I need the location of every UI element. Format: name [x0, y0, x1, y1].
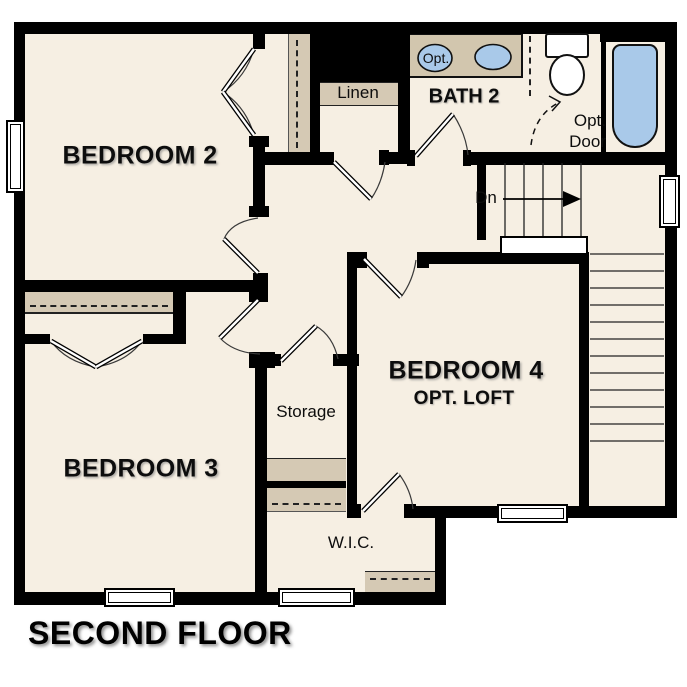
room-label-wic: W.I.C.: [328, 533, 374, 553]
window-pane: [108, 592, 171, 603]
door-swing: [281, 326, 338, 361]
optional-door-label-line2: Door: [540, 131, 606, 152]
door-swing: [220, 300, 260, 354]
room-label-bedroom2: BEDROOM 2: [62, 142, 217, 171]
down-arrow-icon: [503, 191, 581, 207]
floorplan-canvas: BEDROOM 2 BEDROOM 3 BEDROOM 4 OPT. LOFT …: [0, 0, 687, 687]
door-swing: [363, 474, 413, 511]
window: [6, 120, 25, 193]
door-swing: [51, 341, 142, 367]
toilet-icon: [546, 34, 588, 95]
window-pane: [663, 179, 676, 224]
door-swing: [416, 114, 468, 156]
window: [497, 504, 568, 523]
plan-linework-layer: [0, 0, 687, 687]
window: [104, 588, 175, 607]
room-label-bath2: BATH 2: [429, 86, 500, 109]
window-pane: [282, 592, 351, 603]
plan-title: SECOND FLOOR: [28, 615, 292, 652]
stairs-down-label: Dn: [475, 188, 497, 208]
window-pane: [10, 124, 21, 189]
optional-door-label-line1: Opt.: [540, 110, 606, 131]
window: [278, 588, 355, 607]
room-label-linen: Linen: [337, 83, 379, 103]
stair-treads: [505, 163, 664, 441]
door-swing: [364, 259, 416, 297]
optional-door-label: Opt. Door: [540, 110, 606, 152]
optional-sink-label: Opt.: [423, 50, 449, 66]
window-pane: [501, 508, 564, 519]
door-swing: [334, 162, 385, 199]
door-swing: [224, 218, 258, 273]
bathtub-icon: [612, 44, 658, 148]
room-label-bedroom4: BEDROOM 4: [388, 357, 543, 386]
room-label-storage: Storage: [276, 402, 336, 422]
window: [659, 175, 680, 228]
sink-icon: [475, 45, 511, 70]
room-label-bedroom3: BEDROOM 3: [63, 455, 218, 484]
room-sublabel-opt-loft: OPT. LOFT: [414, 388, 515, 410]
door-swing: [223, 49, 254, 135]
